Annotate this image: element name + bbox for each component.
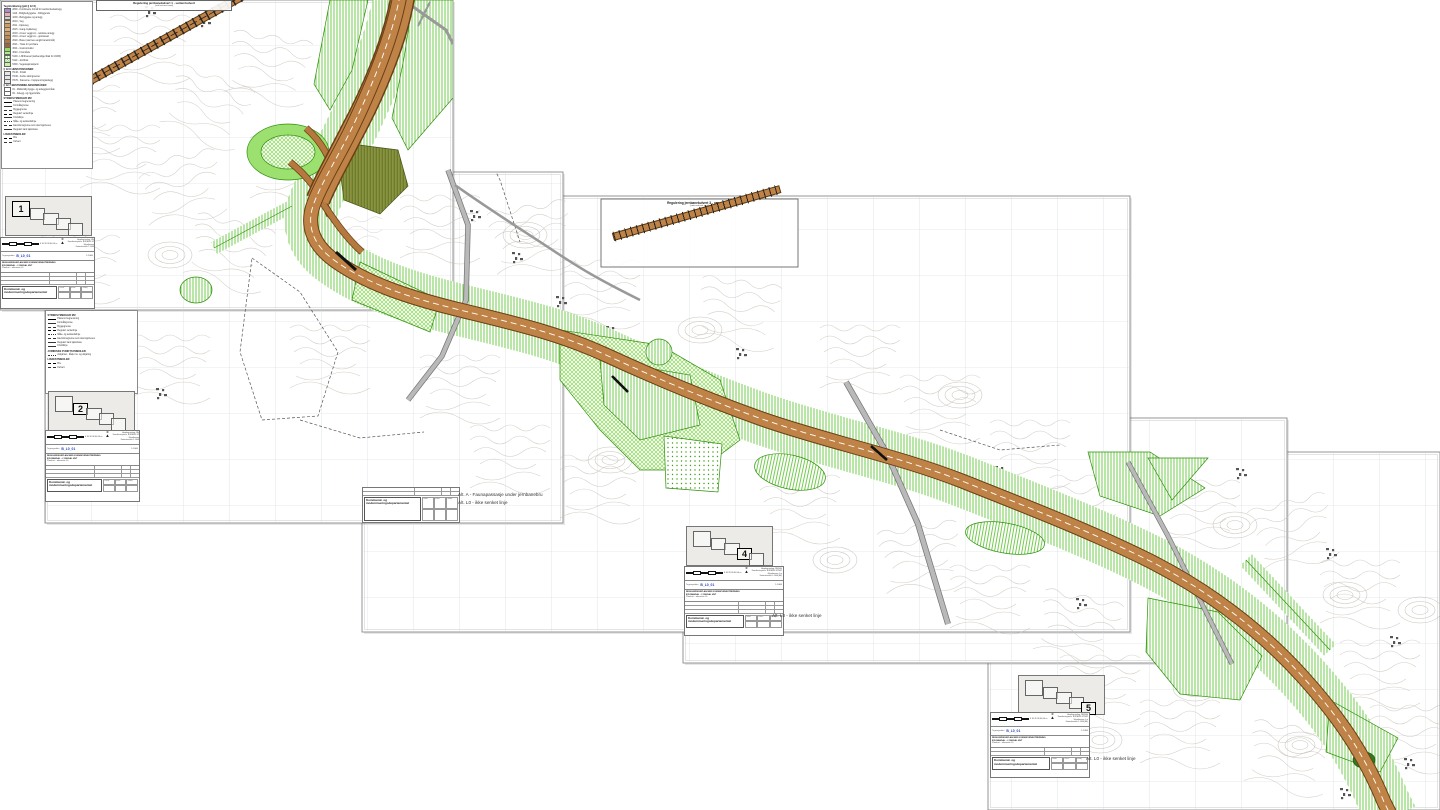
overview-map-1[interactable]: 1 (5, 196, 92, 236)
legend-line-sample (48, 367, 57, 368)
legend-label: H190 - Andre sikringssoner (12, 76, 40, 78)
legend-label: 2011 - Kjøreveg (12, 25, 28, 27)
overview-map-5[interactable]: 5 (1018, 675, 1105, 715)
map-meta: Høydegrunnlag: NN2000Koordinatsystem: EU… (1058, 714, 1088, 724)
legend-item: #2 - Anlegg- og riggområde (4, 92, 92, 96)
legend-swatch (4, 62, 12, 67)
legend-label: 5100 - LNFR-areal (nødvendige tiltak for… (12, 56, 61, 58)
revision-table (1, 273, 94, 284)
overview-sheet-box (68, 223, 83, 236)
legend-label: Frisiktlinje (13, 117, 23, 119)
scale-bar: 0 10 20 30 40 50 m (686, 571, 741, 575)
drawing-code: B_L0_01 (61, 447, 75, 451)
legend-label: Formålsgrense (13, 105, 28, 107)
legend-line-sample (4, 125, 13, 126)
organization: Kommunal- ogmoderniseringsdepartementet (2, 286, 57, 299)
overview-sheet-box (749, 553, 764, 566)
scale-bar: 0 10 20 30 40 50 m (2, 242, 57, 246)
legend-label: H140 - Frisikt (12, 72, 26, 74)
legend-swatch (4, 91, 12, 96)
legend-section-header: Tegnforklaring (pbl § 12-5) (4, 5, 92, 8)
north-arrow-icon: N▲ (60, 239, 64, 246)
legend-label: Regulert senterlinje (13, 113, 33, 115)
sheet-number: 4 (742, 550, 747, 559)
scale-bar: 0 10 20 30 40 50 m (47, 435, 102, 439)
legend-section-header: LINJESYMBOLER (48, 358, 137, 361)
legend-item: H370 - Faresone - høyspenningsanlegg (4, 79, 92, 83)
title-block-3: Kommunal- ogmoderniseringsdepartementet … (362, 487, 460, 523)
legend-section-header: LINJESYMBOLER (4, 133, 92, 136)
legend-label: H370 - Faresone - høyspenningsanlegg (12, 80, 52, 82)
legend-label: 2018 - Annen veggrunn - tekniske anlegg (12, 33, 54, 35)
legend-section-header: STREKSYMBOLER MV. (48, 314, 137, 317)
legend-line-sample (48, 327, 57, 328)
legend-item: 5300 - Vegetasjonsskjerm (4, 63, 92, 67)
map-meta: Høydegrunnlag: NN2000Koordinatsystem: EU… (752, 568, 782, 578)
title-block-5: 0 10 20 30 40 50 m N▲ Høydegrunnlag: NN2… (990, 712, 1090, 778)
legend-label: 2010 - Veg (12, 21, 23, 23)
legend-label: Avkjørsel - både inn- og utkjøring (57, 354, 91, 356)
legend-label: Eiendomsgrense som skal oppheves (13, 125, 51, 127)
legend-label: Regulert kant kjørebane (13, 129, 38, 131)
legend-label: Byggegrense (13, 109, 27, 111)
organization: Kommunal- ogmoderniseringsdepartementet (364, 497, 421, 521)
legend-item: Frisiktlinje (48, 345, 137, 349)
legend-main[interactable]: Tegnforklaring (pbl § 12-5)2800 - Kombin… (1, 1, 93, 169)
map-meta: Høydegrunnlag: NN2000Koordinatsystem: EU… (113, 432, 140, 442)
map-canvas[interactable] (0, 0, 1440, 810)
title-block-4: 0 10 20 30 40 50 m N▲ Høydegrunnlag: NN2… (684, 566, 784, 636)
overview-map-4[interactable]: 4 (686, 526, 773, 566)
inset-detail-3: Regulering jernbanekulvert 3 - over kulv… (601, 199, 798, 267)
organization: Kommunal- ogmoderniseringsdepartementet (47, 479, 102, 492)
legend-label: Bru (57, 363, 61, 365)
title-block-2: 0 10 20 30 40 50 m N▲ Høydegrunnlag: NN2… (45, 430, 140, 502)
scale-bar: 0 10 20 30 40 50 m (992, 717, 1047, 721)
legend-label: #2 - Anlegg- og riggområde (12, 93, 40, 95)
legend-label: 1000 - Bebyggelse og anlegg (12, 17, 42, 19)
legend-label: 5300 - Vegetasjonsskjerm (12, 64, 38, 66)
legend-item: Regulert kant kjørebane (4, 128, 92, 132)
north-arrow-icon: N▲ (105, 432, 109, 439)
legend-label: Eiendomsgrense som skal oppheves (57, 338, 95, 340)
legend-item: Kulvert (48, 366, 137, 370)
inset-title-1: Regulering jernbanekulvert 1 - senket ku… (96, 0, 232, 11)
legend-section-header: § 12-6 HENSYNSSONER (4, 68, 92, 71)
organization: Kommunal- ogmoderniseringsdepartementet (992, 757, 1050, 770)
legend-line-sample (4, 121, 13, 122)
legend-label: Kulvert (57, 367, 64, 369)
legend-section-header: STREKSYMBOLER MV. (4, 97, 92, 100)
legend-label: 3001 - Grønnstruktur (12, 48, 33, 50)
legend-label: Måle- og avstandslinje (57, 334, 80, 336)
legend-line-sample (48, 323, 57, 324)
north-arrow-icon: N▲ (1050, 714, 1054, 721)
organization: Kommunal- ogmoderniseringsdepartementet (686, 615, 744, 628)
legend-label: 3040 - Friområde (12, 52, 30, 54)
legend-item: Kulvert (4, 140, 92, 144)
legend-label: Regulert senterlinje (57, 330, 77, 332)
legend-label: 2019 - Annen veggrunn - grøntareal (12, 36, 48, 38)
legend-line-sample (4, 129, 13, 130)
overview-map-2[interactable]: 2 (48, 391, 135, 431)
north-arrow-icon: N▲ (744, 568, 748, 575)
legend-section-header: § 12-7 BESTEMMELSESOMRÅDER (4, 84, 92, 87)
legend-line-sample (48, 319, 57, 320)
legend-line-sample (48, 355, 57, 356)
legend-line-sample (48, 334, 57, 335)
legend-line-sample (48, 330, 57, 331)
overview-sheet-box (693, 531, 711, 547)
legend-label: Byggegrense (57, 326, 71, 328)
revision-table (363, 488, 459, 496)
legend-label: 2021 - Trasé for jernbane (12, 44, 38, 46)
overview-sheet-box: 1 (12, 201, 30, 217)
legend-label: 5110 - Jordbruk (12, 60, 28, 62)
drawing-code: B_L0_01 (16, 254, 30, 258)
plan-map-page: Tegnforklaring (pbl § 12-5)2800 - Kombin… (0, 0, 1440, 810)
overview-sheet-box (1025, 680, 1043, 696)
legend-label: Planens begrensning (13, 101, 35, 103)
title-block-1: 0 10 20 30 40 50 m N▲ Høydegrunnlag: NN2… (0, 237, 95, 309)
legend-label: Frisiktlinje (57, 345, 67, 347)
legend-line-sample (4, 114, 13, 115)
legend-label: 2015 - Gang-/sykkelveg (12, 29, 36, 31)
legend-label: 2800 - Kombinerte formål for samferdsels… (12, 9, 61, 11)
legend-label: Formålsgrense (57, 322, 72, 324)
legend-label: Måle- og avstandslinje (13, 121, 36, 123)
legend-swatch (4, 79, 12, 84)
legend-line-sample (48, 338, 57, 339)
legend-section-header: JURIDISKE PUNKTSYMBOLER (48, 350, 137, 353)
drawing-code: B_L0_01 (700, 583, 714, 587)
legend-line-sample (4, 110, 13, 111)
legend-label: #1 - Midlertidig bygge- og anleggsområde (12, 89, 54, 91)
legend-item: Avkjørsel - både inn- og utkjøring (48, 353, 137, 357)
legend-label: Regulert kant kjørebane (57, 342, 82, 344)
legend-line-sample (48, 363, 57, 364)
legend-line-sample (48, 342, 57, 343)
revision-table (991, 748, 1089, 756)
sheet-number: 2 (78, 405, 83, 414)
legend-line-sample (48, 346, 57, 347)
legend-line-sample (4, 117, 13, 118)
drawing-code: B_L0_01 (1006, 729, 1020, 733)
legend-line-sample (4, 102, 13, 103)
legend-label: Bru (13, 137, 17, 139)
legend-label: Kulvert (13, 141, 20, 143)
legend-label: 2020 - Bane (nærmere angitt baneformål) (12, 40, 54, 42)
legend-label: 1110 - Boligbebyggelse - frittliggende (12, 13, 50, 15)
map-meta: Høydegrunnlag: NN2000Koordinatsystem: EU… (68, 239, 95, 249)
sheet-number: 1 (18, 205, 23, 214)
legend-line-sample (4, 106, 13, 107)
revision-table (46, 466, 139, 477)
legend-line-sample (4, 138, 13, 139)
overview-sheet-box (55, 396, 73, 412)
revision-table (685, 602, 783, 613)
legend-label: Planens begrensning (57, 318, 79, 320)
legend-line-sample (4, 142, 13, 143)
legend-line-symbols[interactable]: STREKSYMBOLER MV.Planens begrensningForm… (45, 310, 138, 394)
